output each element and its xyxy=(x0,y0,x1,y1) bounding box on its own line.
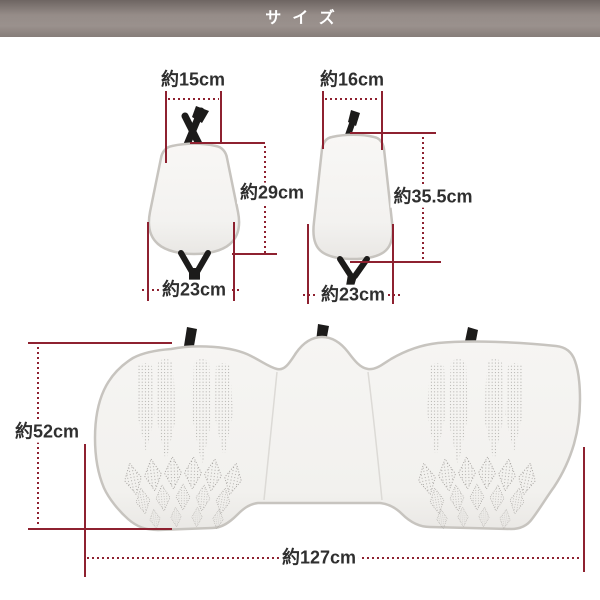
back-large-height-label: 約35.5cm xyxy=(390,187,475,208)
back-small-bottom-width-label: 約23cm xyxy=(159,280,229,301)
back-large-top-width-label: 約16cm xyxy=(317,70,387,91)
back-small-top-width-label: 約15cm xyxy=(158,70,228,91)
bench-height-label: 約52cm xyxy=(12,422,82,443)
diagram-canvas xyxy=(0,0,600,600)
back-large-bottom-width-label: 約23cm xyxy=(318,285,388,306)
back-small-height-label: 約29cm xyxy=(237,183,307,204)
bench-cushion xyxy=(95,324,580,530)
product-size-diagram: サイズ xyxy=(0,0,600,600)
bench-width-label: 約127cm xyxy=(279,548,359,569)
back-cushion-small xyxy=(149,106,239,291)
back-cushion-large xyxy=(313,110,392,293)
